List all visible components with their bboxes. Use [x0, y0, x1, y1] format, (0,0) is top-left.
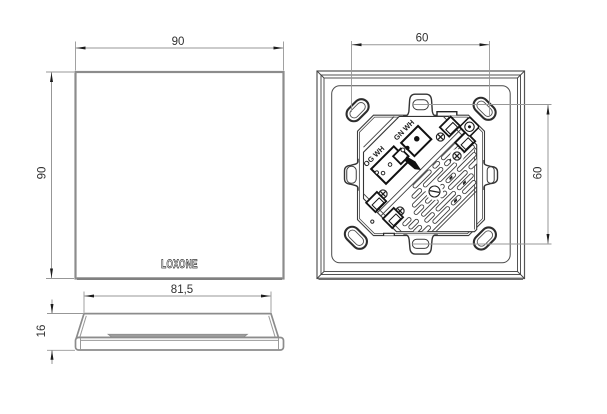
svg-text:60: 60: [533, 167, 545, 180]
svg-text:16: 16: [36, 325, 48, 338]
svg-text:81,5: 81,5: [171, 284, 193, 296]
svg-text:90: 90: [37, 167, 49, 180]
svg-text:60: 60: [416, 33, 429, 45]
svg-text:90: 90: [172, 36, 185, 48]
svg-text:LOXONE: LOXONE: [161, 259, 198, 272]
